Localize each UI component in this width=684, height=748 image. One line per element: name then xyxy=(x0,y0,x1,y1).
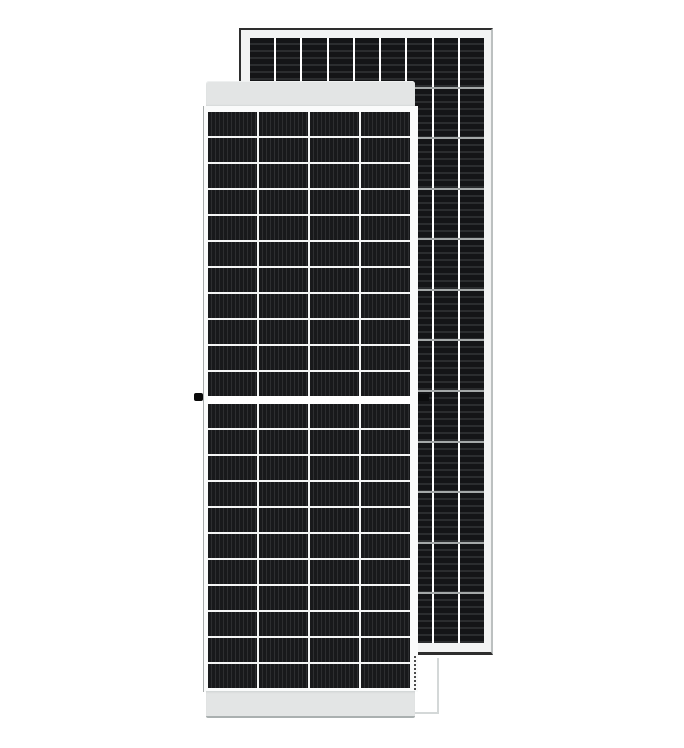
front-panel-half xyxy=(208,112,410,396)
solar-cell xyxy=(208,586,257,610)
solar-cell xyxy=(310,320,359,344)
solar-cell xyxy=(310,346,359,370)
solar-cell xyxy=(310,190,359,214)
solar-cell xyxy=(259,430,308,454)
solar-cell xyxy=(460,38,484,87)
solar-cell xyxy=(460,392,484,441)
solar-cell xyxy=(310,164,359,188)
solar-cell xyxy=(361,664,410,688)
solar-cell xyxy=(310,586,359,610)
solar-cell xyxy=(259,534,308,558)
solar-cell xyxy=(361,346,410,370)
solar-cell xyxy=(355,38,379,87)
solar-cell xyxy=(259,456,308,480)
solar-cell xyxy=(310,112,359,136)
solar-cell xyxy=(361,242,410,266)
frame-dotted-edge xyxy=(414,656,416,690)
solar-cell xyxy=(361,560,410,584)
solar-cell xyxy=(208,560,257,584)
solar-cell xyxy=(208,456,257,480)
front-panel-shadow-edge xyxy=(415,658,439,714)
solar-cell xyxy=(259,242,308,266)
solar-cell xyxy=(361,112,410,136)
solar-cell xyxy=(208,268,257,292)
solar-cell xyxy=(310,612,359,636)
solar-cell xyxy=(460,544,484,593)
solar-cell xyxy=(460,594,484,643)
solar-cell xyxy=(361,456,410,480)
solar-cell xyxy=(259,404,308,428)
solar-cell xyxy=(361,612,410,636)
solar-cell xyxy=(259,112,308,136)
solar-cell xyxy=(208,372,257,396)
solar-cell xyxy=(310,294,359,318)
solar-cell xyxy=(310,664,359,688)
solar-cell xyxy=(361,482,410,506)
solar-cell xyxy=(302,38,326,87)
solar-cell xyxy=(208,320,257,344)
solar-cell xyxy=(310,482,359,506)
solar-cell xyxy=(381,38,405,87)
front-panel-cells xyxy=(208,112,410,688)
solar-cell xyxy=(434,89,458,138)
solar-cell xyxy=(361,216,410,240)
solar-cell xyxy=(208,112,257,136)
solar-cell xyxy=(310,372,359,396)
solar-cell xyxy=(208,216,257,240)
solar-cell xyxy=(310,560,359,584)
solar-cell xyxy=(208,164,257,188)
solar-cell xyxy=(310,216,359,240)
solar-cell xyxy=(361,138,410,162)
solar-cell xyxy=(310,456,359,480)
solar-cell xyxy=(361,320,410,344)
front-solar-panel xyxy=(203,106,418,692)
solar-cell xyxy=(208,242,257,266)
solar-cell xyxy=(208,482,257,506)
front-panel-top-rail xyxy=(206,81,415,107)
solar-cell xyxy=(361,638,410,662)
solar-cell xyxy=(208,612,257,636)
solar-cell xyxy=(310,638,359,662)
solar-cell xyxy=(434,38,458,87)
solar-cell xyxy=(259,320,308,344)
front-panel-half xyxy=(208,404,410,688)
solar-cell xyxy=(208,190,257,214)
solar-cell xyxy=(208,430,257,454)
solar-cell xyxy=(434,341,458,390)
solar-cell xyxy=(259,138,308,162)
solar-cell xyxy=(361,586,410,610)
solar-cell xyxy=(361,190,410,214)
solar-cell xyxy=(434,443,458,492)
solar-cell xyxy=(361,404,410,428)
solar-cell xyxy=(259,164,308,188)
solar-cell xyxy=(361,294,410,318)
solar-cell xyxy=(208,404,257,428)
solar-cell xyxy=(434,594,458,643)
solar-cell xyxy=(361,508,410,532)
solar-cell xyxy=(460,291,484,340)
solar-cell xyxy=(259,372,308,396)
solar-cell xyxy=(259,508,308,532)
solar-cell xyxy=(460,89,484,138)
product-photo-stage xyxy=(0,0,684,748)
solar-cell xyxy=(259,638,308,662)
solar-cell xyxy=(460,139,484,188)
solar-cell xyxy=(208,664,257,688)
solar-cell xyxy=(259,216,308,240)
solar-cell xyxy=(259,346,308,370)
solar-cell xyxy=(361,268,410,292)
solar-cell xyxy=(250,38,274,87)
solar-cell xyxy=(460,493,484,542)
solar-cell xyxy=(208,534,257,558)
solar-cell xyxy=(259,268,308,292)
solar-cell xyxy=(460,341,484,390)
solar-cell xyxy=(361,372,410,396)
solar-cell xyxy=(259,190,308,214)
solar-cell xyxy=(259,560,308,584)
solar-cell xyxy=(276,38,300,87)
solar-cell xyxy=(310,534,359,558)
solar-cell xyxy=(208,294,257,318)
solar-cell xyxy=(434,544,458,593)
solar-cell xyxy=(434,291,458,340)
front-panel-bottom-rail xyxy=(206,691,415,718)
solar-cell xyxy=(310,508,359,532)
solar-cell xyxy=(310,268,359,292)
solar-cell xyxy=(460,190,484,239)
solar-cell xyxy=(208,138,257,162)
solar-cell xyxy=(310,138,359,162)
solar-cell xyxy=(434,240,458,289)
solar-cell xyxy=(460,443,484,492)
rear-grounding-lug xyxy=(417,394,429,401)
solar-cell xyxy=(259,612,308,636)
solar-cell xyxy=(208,508,257,532)
solar-cell xyxy=(259,586,308,610)
solar-cell xyxy=(208,638,257,662)
solar-cell xyxy=(310,430,359,454)
solar-cell xyxy=(259,482,308,506)
solar-cell xyxy=(310,404,359,428)
solar-cell xyxy=(310,242,359,266)
solar-cell xyxy=(361,164,410,188)
solar-cell xyxy=(460,240,484,289)
solar-cell xyxy=(208,346,257,370)
solar-cell xyxy=(361,534,410,558)
front-grounding-lug xyxy=(194,393,203,401)
solar-cell xyxy=(434,493,458,542)
solar-cell xyxy=(407,38,431,87)
solar-cell xyxy=(361,430,410,454)
solar-cell xyxy=(259,664,308,688)
solar-cell xyxy=(329,38,353,87)
solar-cell xyxy=(434,139,458,188)
solar-cell xyxy=(434,392,458,441)
solar-cell xyxy=(259,294,308,318)
solar-cell xyxy=(434,190,458,239)
